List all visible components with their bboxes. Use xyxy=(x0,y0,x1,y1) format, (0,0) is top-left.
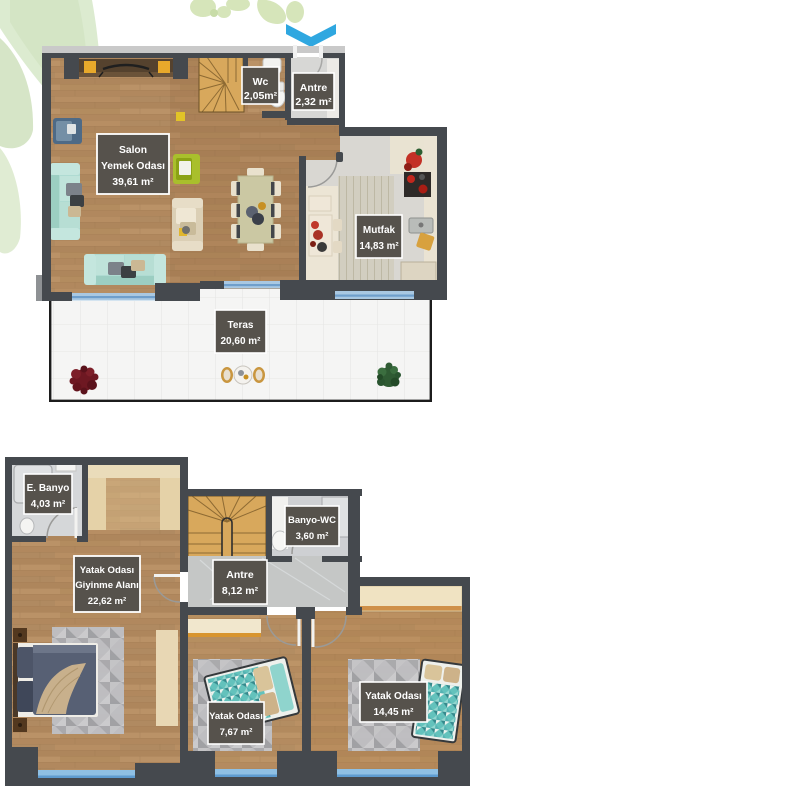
svg-text:Yatak Odası: Yatak Odası xyxy=(365,691,422,702)
svg-text:Yemek Odası: Yemek Odası xyxy=(101,161,165,172)
svg-text:Teras: Teras xyxy=(228,320,254,331)
svg-text:2,32 m²: 2,32 m² xyxy=(295,96,332,108)
svg-text:Wc: Wc xyxy=(253,76,269,88)
svg-text:Antre: Antre xyxy=(226,569,254,581)
svg-text:14,83 m²: 14,83 m² xyxy=(359,241,399,252)
svg-text:4,03 m²: 4,03 m² xyxy=(31,499,66,510)
svg-text:Salon: Salon xyxy=(119,145,147,156)
svg-text:Antre: Antre xyxy=(300,82,328,94)
svg-text:20,60 m²: 20,60 m² xyxy=(220,336,261,347)
svg-text:22,62 m²: 22,62 m² xyxy=(88,596,126,607)
svg-text:14,45 m²: 14,45 m² xyxy=(373,707,414,718)
svg-text:Yatak Odası: Yatak Odası xyxy=(80,565,134,576)
svg-text:E. Banyo: E. Banyo xyxy=(27,483,70,494)
svg-text:3,60 m²: 3,60 m² xyxy=(296,531,329,542)
svg-text:Yatak Odası: Yatak Odası xyxy=(209,711,263,722)
svg-text:39,61 m²: 39,61 m² xyxy=(112,177,154,188)
svg-text:Banyo-WC: Banyo-WC xyxy=(288,515,336,526)
svg-text:8,12 m²: 8,12 m² xyxy=(222,585,259,597)
svg-text:Mutfak: Mutfak xyxy=(363,225,396,236)
svg-text:7,67 m²: 7,67 m² xyxy=(220,727,253,738)
svg-text:2,05m²: 2,05m² xyxy=(244,90,278,102)
svg-text:Giyinme Alanı: Giyinme Alanı xyxy=(75,580,139,591)
